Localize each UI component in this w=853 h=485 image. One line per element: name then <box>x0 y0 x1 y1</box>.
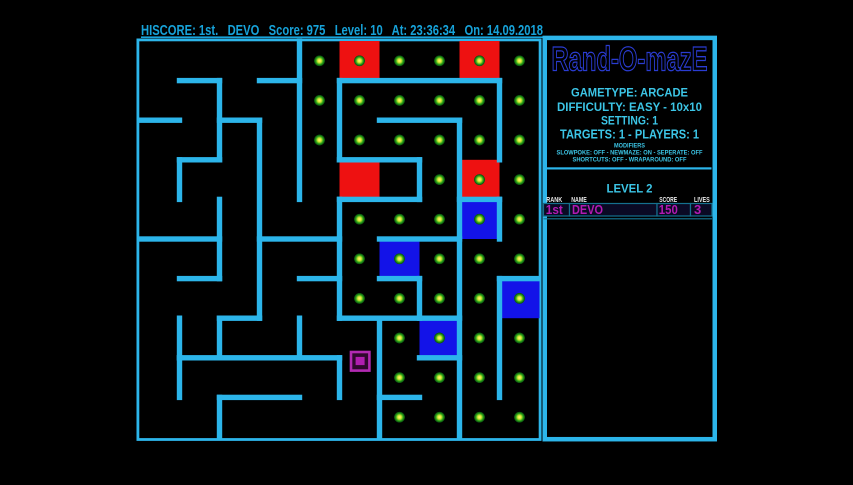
svg-text:150: 150 <box>659 202 678 217</box>
svg-text:LEVEL 2: LEVEL 2 <box>607 182 653 196</box>
svg-text:TARGETS: 1 - PLAYERS: 1: TARGETS: 1 - PLAYERS: 1 <box>560 127 699 142</box>
svg-text:GAMETYPE: ARCADE: GAMETYPE: ARCADE <box>571 88 688 100</box>
svg-text:Rand-O-mazE: Rand-O-mazE <box>552 41 708 79</box>
svg-text:1st: 1st <box>546 202 564 217</box>
svg-text:SHORTCUTS: OFF - WRAPAROUND: O: SHORTCUTS: OFF - WRAPAROUND: OFF <box>573 156 687 163</box>
svg-text:HISCORE: 1st. DEVO Score:: HISCORE: 1st. DEVO Score: 975 Level: 10 … <box>141 23 543 39</box>
svg-text:DEVO: DEVO <box>572 202 603 217</box>
svg-text:3: 3 <box>694 202 701 217</box>
svg-text:DIFFICULTY: EASY - 10x10: DIFFICULTY: EASY - 10x10 <box>557 102 702 114</box>
svg-text:MODIFIERS: MODIFIERS <box>614 143 646 150</box>
